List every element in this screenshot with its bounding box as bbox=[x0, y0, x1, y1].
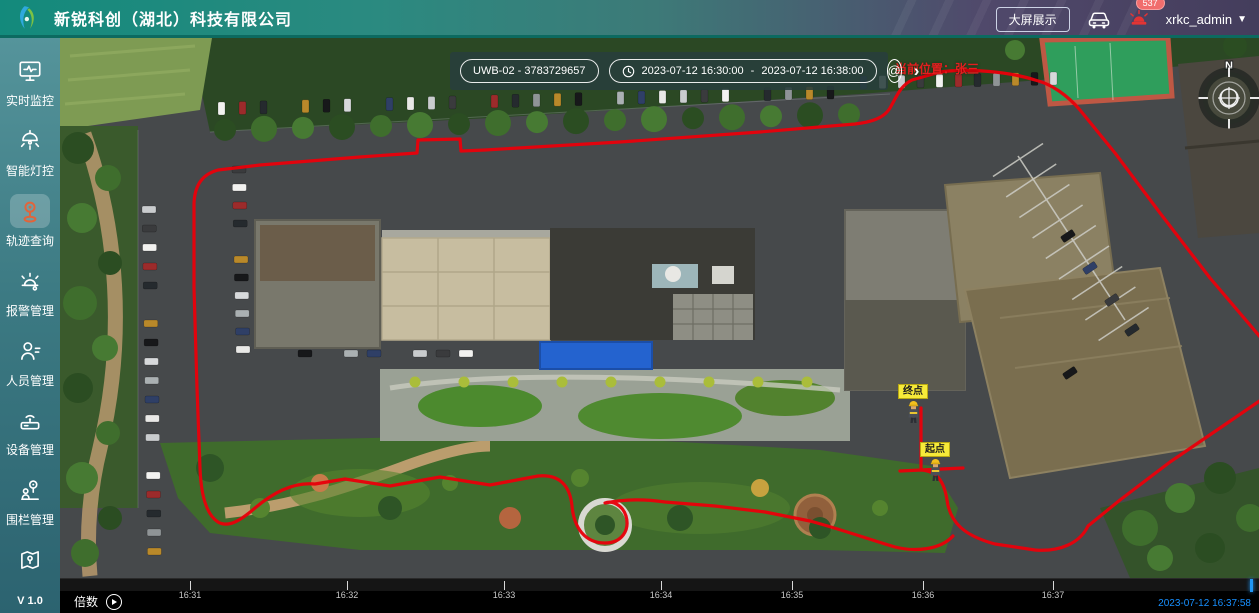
compass-control[interactable]: N bbox=[1194, 58, 1259, 130]
alarm-icon[interactable]: 537 bbox=[1128, 8, 1150, 30]
map-icon bbox=[10, 543, 50, 577]
play-button[interactable] bbox=[106, 594, 122, 610]
speed-label: 倍数 bbox=[74, 593, 98, 610]
device-icon bbox=[10, 403, 50, 437]
app-title: 新锐科创（湖北）科技有限公司 bbox=[54, 6, 292, 30]
alarm-badge: 537 bbox=[1136, 0, 1165, 10]
vehicle-icon[interactable] bbox=[1086, 9, 1112, 29]
tick-label: 16:32 bbox=[336, 590, 359, 600]
version-label: V 1.0 bbox=[0, 595, 60, 607]
monitor-icon bbox=[10, 54, 50, 88]
sidebar-item-fence-manage[interactable]: 围栏管理 bbox=[0, 473, 60, 543]
tick-label: 16:33 bbox=[493, 590, 516, 600]
playhead[interactable] bbox=[1250, 579, 1253, 592]
tick-mark bbox=[347, 581, 348, 590]
username: xrkc_admin bbox=[1166, 12, 1232, 27]
alarm-bell-icon bbox=[10, 264, 50, 298]
start-marker[interactable]: 起点 bbox=[920, 442, 950, 482]
clock-icon bbox=[622, 65, 635, 78]
track-pin-icon bbox=[10, 194, 50, 228]
current-time: 2023-07-12 16:37:58 bbox=[1158, 598, 1251, 609]
end-marker[interactable]: 终点 bbox=[898, 384, 928, 424]
search-button[interactable]: @ bbox=[887, 59, 902, 83]
tick-label: 16:34 bbox=[650, 590, 673, 600]
sidebar-item-label: 智能灯控 bbox=[6, 162, 54, 179]
sidebar-item-label: 轨迹查询 bbox=[6, 232, 54, 249]
user-menu[interactable]: xrkc_admin ▼ bbox=[1166, 12, 1247, 27]
end-time: 2023-07-12 16:38:00 bbox=[761, 65, 863, 77]
sidebar-item-alarm-manage[interactable]: 报警管理 bbox=[0, 264, 60, 334]
sidebar-nav: 实时监控 智能灯控 轨迹查询 bbox=[0, 38, 60, 613]
sidebar-item-realtime-monitor[interactable]: 实时监控 bbox=[0, 54, 60, 124]
end-marker-label: 终点 bbox=[898, 384, 928, 399]
sidebar-item-label: 设备管理 bbox=[6, 441, 54, 458]
person-icon bbox=[10, 334, 50, 368]
playback-timeline: 16:31 16:32 16:33 16:34 16:35 16:36 16:3… bbox=[60, 578, 1259, 613]
chevron-down-icon: ▼ bbox=[1237, 14, 1247, 25]
aerial-map[interactable] bbox=[60, 38, 1259, 578]
date-separator: - bbox=[751, 65, 755, 77]
sidebar-item-track-query[interactable]: 轨迹查询 bbox=[0, 194, 60, 264]
sidebar-item-smart-light[interactable]: 智能灯控 bbox=[0, 124, 60, 194]
device-select[interactable]: UWB-02 - 3783729657 bbox=[460, 59, 599, 83]
tick-mark bbox=[923, 581, 924, 590]
start-marker-label: 起点 bbox=[920, 442, 950, 457]
worker-figure-icon bbox=[906, 399, 921, 424]
start-time: 2023-07-12 16:30:00 bbox=[642, 65, 744, 77]
sidebar-item-label: 实时监控 bbox=[6, 92, 54, 109]
tick-label: 16:31 bbox=[179, 590, 202, 600]
tick-mark bbox=[190, 581, 191, 590]
lamp-icon bbox=[10, 124, 50, 158]
tick-mark bbox=[504, 581, 505, 590]
company-logo-icon bbox=[14, 4, 44, 32]
header-bar: 新锐科创（湖北）科技有限公司 大屏展示 537 bbox=[0, 0, 1259, 38]
tick-mark bbox=[792, 581, 793, 590]
query-toolbar: UWB-02 - 3783729657 2023-07-12 16:30:00 … bbox=[450, 52, 888, 90]
next-arrow-button[interactable]: › bbox=[912, 61, 922, 81]
big-screen-button[interactable]: 大屏展示 bbox=[996, 7, 1070, 32]
fence-pin-icon bbox=[10, 473, 50, 507]
sidebar-item-label: 人员管理 bbox=[6, 372, 54, 389]
tick-label: 16:36 bbox=[912, 590, 935, 600]
current-position-label: 当前位置：张三 bbox=[895, 60, 979, 77]
app-root: 新锐科创（湖北）科技有限公司 大屏展示 537 bbox=[0, 0, 1259, 613]
tick-mark bbox=[661, 581, 662, 590]
sidebar-item-personnel-manage[interactable]: 人员管理 bbox=[0, 334, 60, 404]
tick-label: 16:37 bbox=[1042, 590, 1065, 600]
date-range-picker[interactable]: 2023-07-12 16:30:00 - 2023-07-12 16:38:0… bbox=[609, 59, 877, 83]
map-viewport: UWB-02 - 3783729657 2023-07-12 16:30:00 … bbox=[60, 38, 1259, 578]
tick-mark bbox=[1053, 581, 1054, 590]
worker-figure-icon bbox=[928, 457, 943, 482]
sidebar-item-label: 报警管理 bbox=[6, 302, 54, 319]
sidebar-item-device-manage[interactable]: 设备管理 bbox=[0, 403, 60, 473]
sidebar-item-label: 围栏管理 bbox=[6, 511, 54, 528]
tick-label: 16:35 bbox=[781, 590, 804, 600]
